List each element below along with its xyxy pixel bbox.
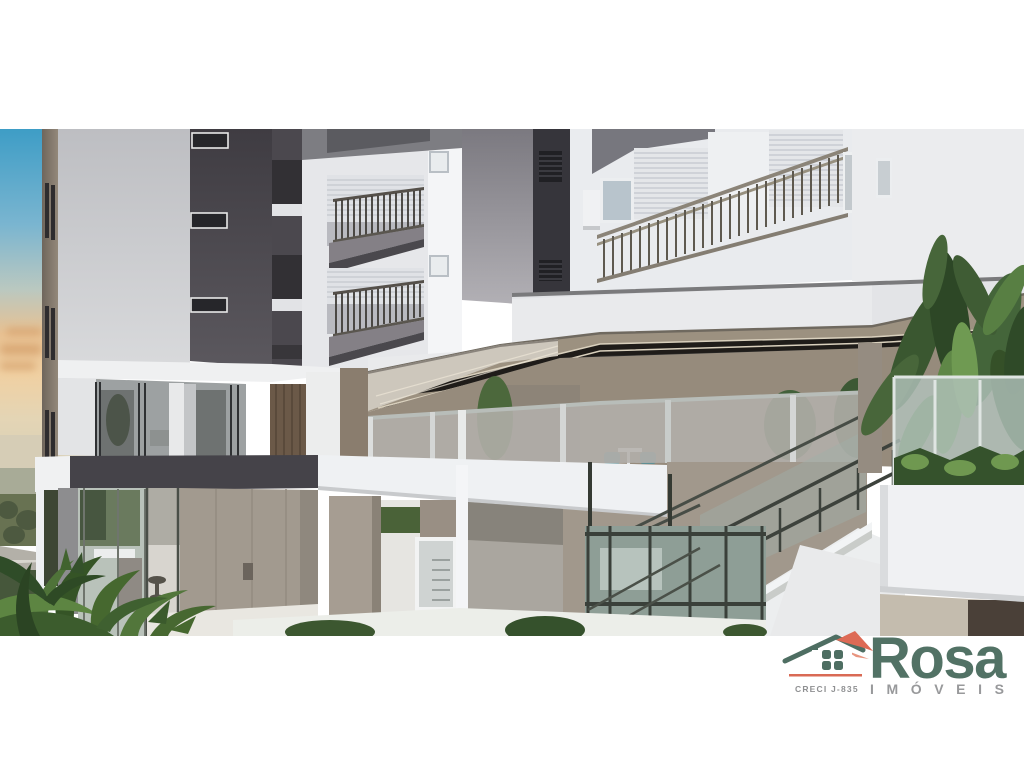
svg-text:CRECI J-835: CRECI J-835 <box>795 684 859 694</box>
svg-text:IMÓVEIS: IMÓVEIS <box>870 680 1017 697</box>
